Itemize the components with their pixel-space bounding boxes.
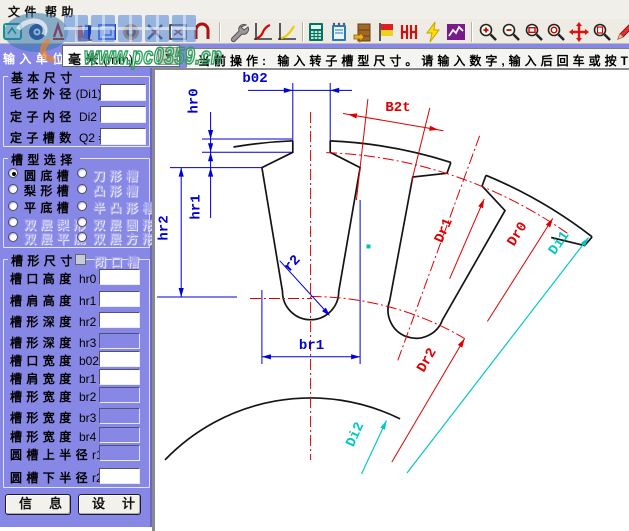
svg-text:B2t: B2t [385,100,410,116]
svg-text:br1: br1 [299,338,324,354]
svg-text:hr1: hr1 [189,194,205,219]
svg-text:b02: b02 [242,71,267,87]
svg-text:hr2: hr2 [157,215,173,240]
svg-text:hr0: hr0 [187,88,203,113]
